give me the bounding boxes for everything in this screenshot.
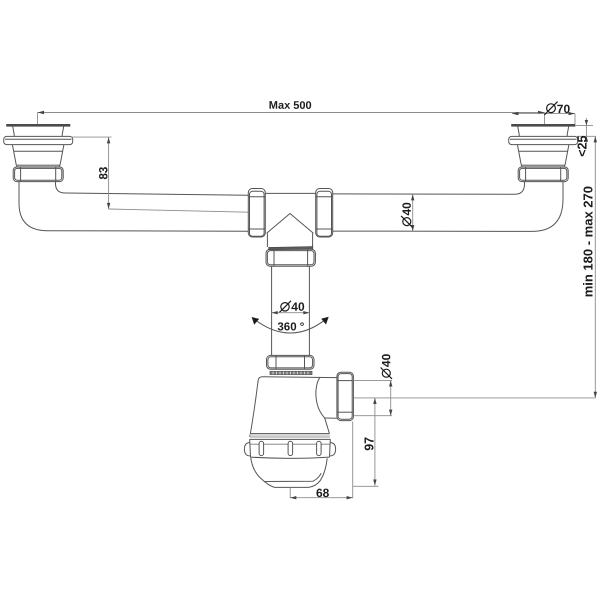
svg-text:40: 40 [379, 353, 393, 367]
svg-text:360 °: 360 ° [277, 321, 304, 333]
svg-text:<25: <25 [575, 136, 589, 157]
svg-text:40: 40 [400, 202, 414, 216]
svg-text:83: 83 [99, 167, 111, 180]
svg-text:40: 40 [291, 300, 305, 314]
svg-text:Max 500: Max 500 [269, 100, 312, 112]
svg-text:97: 97 [363, 437, 377, 451]
svg-text:min 180 - max 270: min 180 - max 270 [581, 186, 596, 297]
svg-text:70: 70 [557, 102, 571, 116]
svg-text:68: 68 [316, 486, 330, 500]
